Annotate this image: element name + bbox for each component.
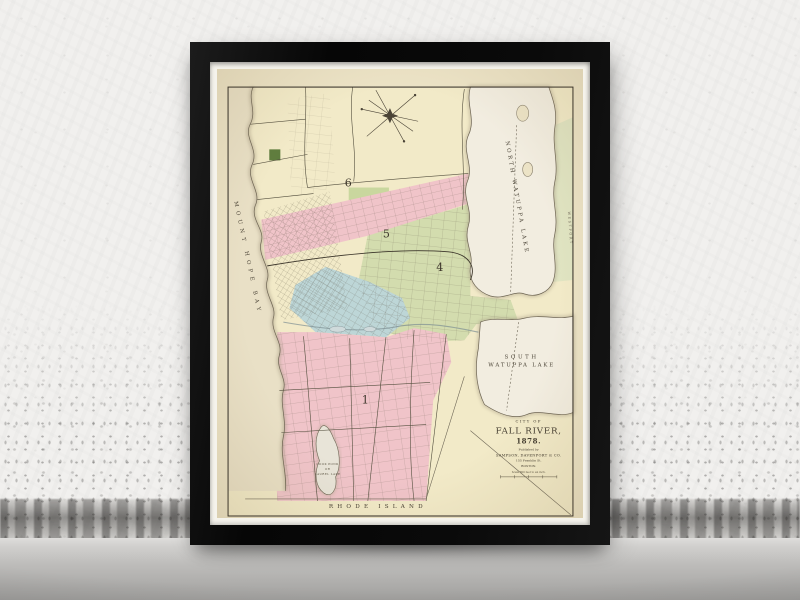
paper-age-overlay bbox=[217, 69, 583, 518]
picture-frame: NORTH WATUPPA LAKE MOUNT HOPE BAY SOUTH … bbox=[190, 42, 610, 545]
frame-mat: NORTH WATUPPA LAKE MOUNT HOPE BAY SOUTH … bbox=[210, 62, 590, 525]
map-sheet: NORTH WATUPPA LAKE MOUNT HOPE BAY SOUTH … bbox=[217, 69, 583, 518]
fall-river-map: NORTH WATUPPA LAKE MOUNT HOPE BAY SOUTH … bbox=[217, 69, 583, 518]
